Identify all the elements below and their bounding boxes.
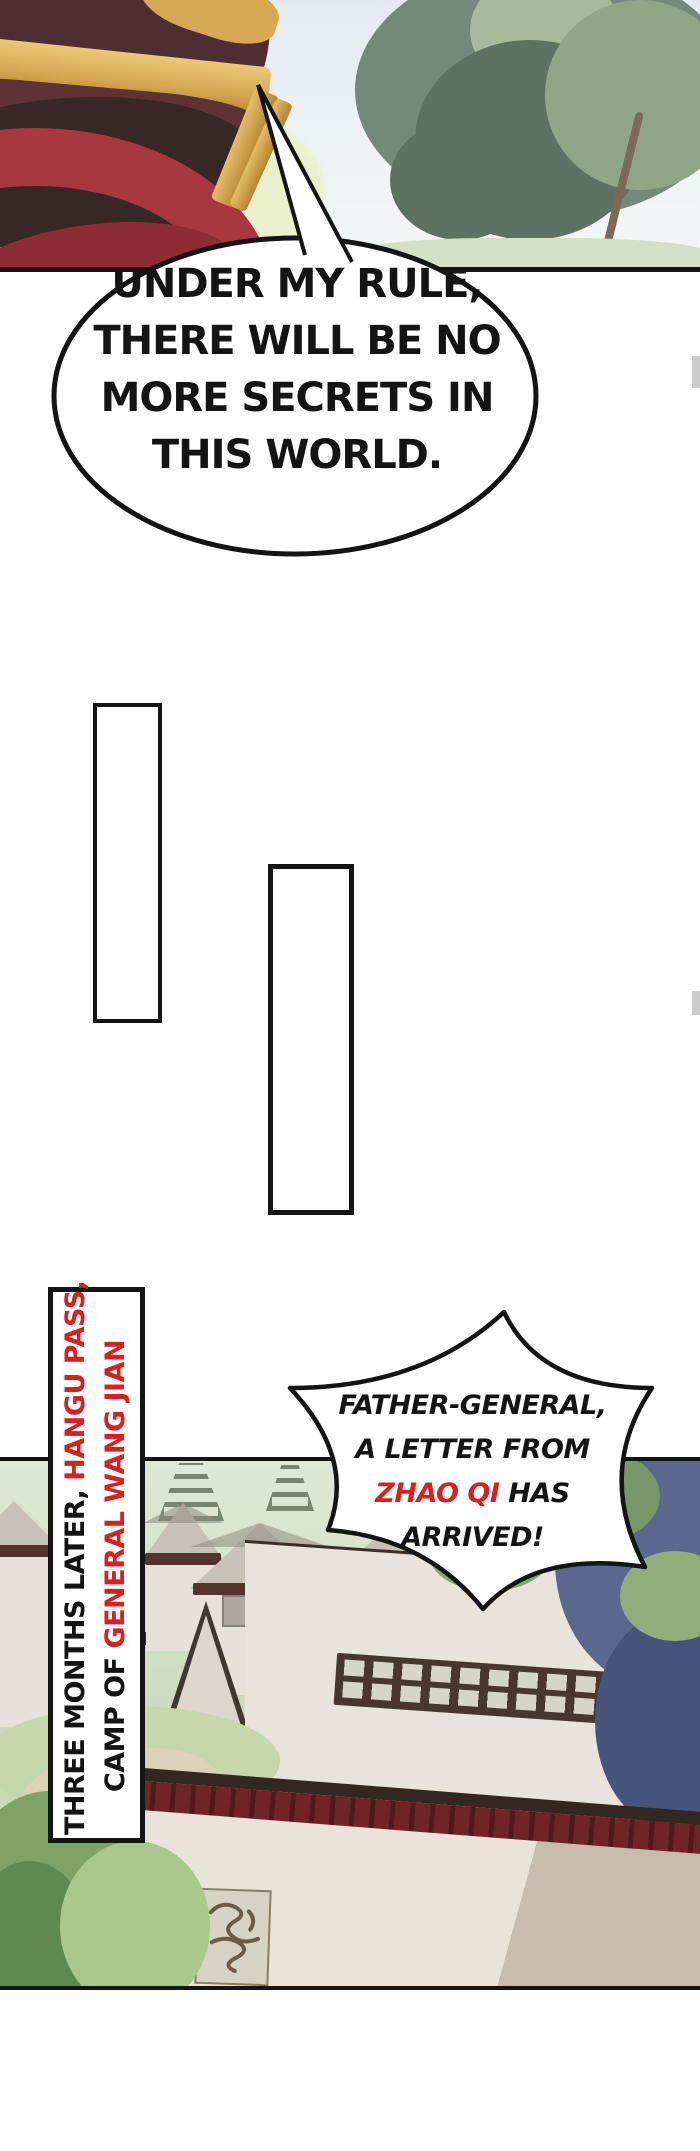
speech-line: THERE WILL BE NO bbox=[72, 313, 522, 370]
caption-black-text: CAMP OF bbox=[100, 1649, 131, 1793]
shout-line: A LETTER FROM bbox=[305, 1428, 640, 1472]
empty-panel-frame-2 bbox=[268, 864, 354, 1215]
caption-line-1: THREE MONTHS LATER, HANGU PASS, bbox=[56, 1297, 96, 1835]
scrollbar-thumb-fragment[interactable] bbox=[692, 356, 700, 388]
shout-line: FATHER-GENERAL, bbox=[305, 1384, 640, 1428]
speech-line: THIS WORLD. bbox=[72, 427, 522, 484]
caption-black-text: THREE MONTHS LATER, bbox=[60, 1481, 91, 1835]
caption-text: THREE MONTHS LATER, HANGU PASS, CAMP OF … bbox=[56, 1297, 136, 1835]
shout-line-rest: HAS bbox=[499, 1478, 569, 1509]
empty-panel-frame-1 bbox=[93, 703, 162, 1023]
caption-line-2: CAMP OF GENERAL WANG JIAN bbox=[96, 1297, 136, 1835]
speech-line: MORE SECRETS IN bbox=[72, 370, 522, 427]
speech-text: UNDER MY RULE, THERE WILL BE NO MORE SEC… bbox=[72, 256, 522, 484]
caption-red-text: HANGU PASS, bbox=[60, 1281, 91, 1481]
top-art-panel bbox=[0, 0, 700, 272]
shout-line: ARRIVED! bbox=[305, 1516, 640, 1560]
speech-line: UNDER MY RULE, bbox=[72, 256, 522, 313]
caption-red-text: GENERAL WANG JIAN bbox=[100, 1340, 131, 1649]
caption-box: THREE MONTHS LATER, HANGU PASS, CAMP OF … bbox=[48, 1287, 145, 1843]
comic-page: UNDER MY RULE, THERE WILL BE NO MORE SEC… bbox=[0, 0, 700, 2151]
scrollbar-thumb-fragment[interactable] bbox=[692, 991, 700, 1015]
shout-text: FATHER-GENERAL, A LETTER FROM ZHAO QI HA… bbox=[305, 1384, 640, 1560]
shout-red-name: ZHAO QI bbox=[375, 1478, 499, 1509]
shout-line: ZHAO QI HAS bbox=[305, 1472, 640, 1516]
tree-foliage-art bbox=[390, 120, 530, 240]
